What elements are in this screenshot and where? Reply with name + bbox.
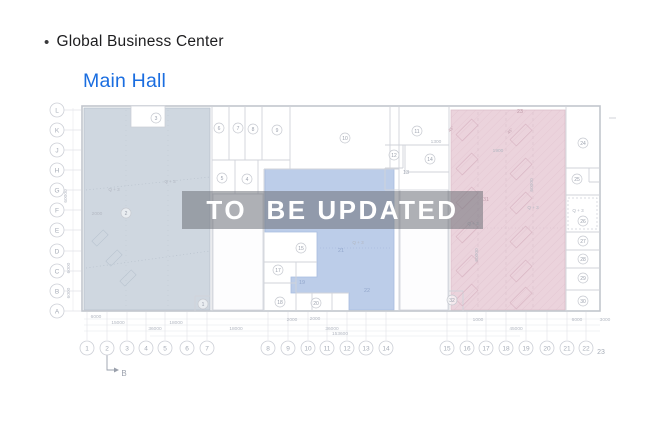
room-number: 7 (237, 126, 240, 132)
room-number: 5 (221, 176, 224, 182)
zone-label: Q + 3 (108, 187, 120, 192)
dimension-label: 36000 (148, 326, 162, 332)
zone-label: Q + 3 (164, 179, 176, 184)
room-number: 15 (298, 246, 304, 252)
room-number: 17 (275, 268, 281, 274)
row-axis-label: B (55, 288, 59, 295)
col-axis-label: 4 (144, 345, 148, 352)
watermark-text: TO BE UPDATED (206, 195, 458, 226)
room-number: 14 (427, 157, 433, 163)
dimension-label: 6000 (572, 317, 583, 323)
col-axis-label: 16 (463, 345, 471, 352)
watermark-banner: TO BE UPDATED (182, 191, 483, 229)
room-number: 28 (580, 257, 586, 263)
dimension-label: 6000 (91, 314, 102, 320)
room-number: 4 (246, 177, 249, 183)
col-axis-label: 9 (286, 345, 290, 352)
room-number-plain: 13 (403, 170, 409, 176)
dimension-label: 45000 (509, 326, 523, 332)
dimension-label: 6000 (66, 287, 72, 298)
col-axis-label: 1 (85, 345, 89, 352)
dimension-label: 153600 (332, 331, 348, 337)
zone-label: Q + 3 (572, 208, 584, 213)
col-axis-label: 12 (343, 345, 351, 352)
room-number: 32 (449, 298, 455, 304)
col-axis-label: 8 (266, 345, 270, 352)
room-number: 12 (391, 153, 397, 159)
dimension-label: 3000 (600, 317, 611, 323)
col-axis-label: 3 (125, 345, 129, 352)
col-axis-label: 5 (163, 345, 167, 352)
room-number-plain: 31 (483, 197, 489, 203)
col-axis-label: 2 (105, 345, 109, 352)
col-axis-label: 13 (362, 345, 370, 352)
room-number: 30 (580, 299, 586, 305)
room-number: 2 (125, 211, 128, 217)
row-axis-label: L (55, 107, 59, 114)
dimension-label: 1300 (431, 139, 442, 145)
col-axis-label: 15 (443, 345, 451, 352)
row-axis-label: C (55, 268, 60, 275)
room-number: 11 (414, 129, 419, 135)
room-number: 26 (580, 219, 586, 225)
col-axis-label: 22 (582, 345, 590, 352)
dimension-label: 60000 (529, 178, 535, 192)
room-number: 29 (580, 276, 586, 282)
room-number-plain: 19 (299, 280, 305, 286)
room-number: 3 (155, 116, 158, 122)
row-axis-label: D (55, 248, 60, 255)
row-axis-label: G (54, 187, 59, 194)
dimension-label: 2000 (310, 316, 321, 322)
col-axis-label: 19 (522, 345, 530, 352)
col-axis-label: 18 (502, 345, 510, 352)
dimension-label: 2000 (92, 211, 103, 217)
room-number: 6 (218, 126, 221, 132)
col-axis-label: 10 (304, 345, 312, 352)
col-axis-label: 6 (185, 345, 189, 352)
dimension-label: 60000 (474, 248, 480, 262)
row-axis-label: F (55, 207, 59, 214)
room-number: 27 (580, 239, 586, 245)
dimension-label: 18000 (169, 320, 183, 326)
row-axis-label: H (55, 167, 60, 174)
dimension-label: 2000 (287, 317, 298, 323)
col-axis-label: 21 (563, 345, 571, 352)
col-axis-label: 7 (205, 345, 209, 352)
row-axis-label: K (55, 127, 60, 134)
dimension-label: 6000 (66, 262, 72, 273)
room-number: 9 (276, 128, 279, 134)
room-number-plain: 21 (338, 248, 344, 254)
section-marker-label: B (121, 369, 126, 378)
app-window: • Global Business Center Main Hall (0, 0, 660, 440)
row-axis-label: A (55, 308, 60, 315)
dimension-label: 15000 (111, 320, 125, 326)
room-number: 25 (574, 177, 580, 183)
room-number: 24 (580, 141, 586, 147)
room-number-plain: 22 (364, 288, 370, 294)
dimension-label: 1900 (493, 148, 504, 154)
row-axis-label: E (55, 227, 60, 234)
room-number: 8 (252, 127, 255, 133)
room-number: 20 (313, 301, 319, 307)
col-axis-label: 14 (382, 345, 390, 352)
section-marker: B (107, 352, 127, 378)
zone-label: Q + 3 (352, 240, 364, 245)
room-number: 18 (277, 300, 283, 306)
col-axis-label: 20 (543, 345, 551, 352)
row-axis-label: J (55, 147, 58, 154)
room-number: 10 (342, 136, 348, 142)
dimension-label: 18000 (229, 326, 243, 332)
dimension-label: 1000 (473, 317, 484, 323)
room-number-plain: 23 (517, 109, 523, 115)
zone-label: Q + 3 (527, 205, 539, 210)
col-axis-label: 17 (482, 345, 490, 352)
col-axis-label-plain: 23 (597, 349, 605, 356)
col-axis-label: 11 (324, 345, 331, 352)
room-number: 1 (202, 302, 205, 308)
